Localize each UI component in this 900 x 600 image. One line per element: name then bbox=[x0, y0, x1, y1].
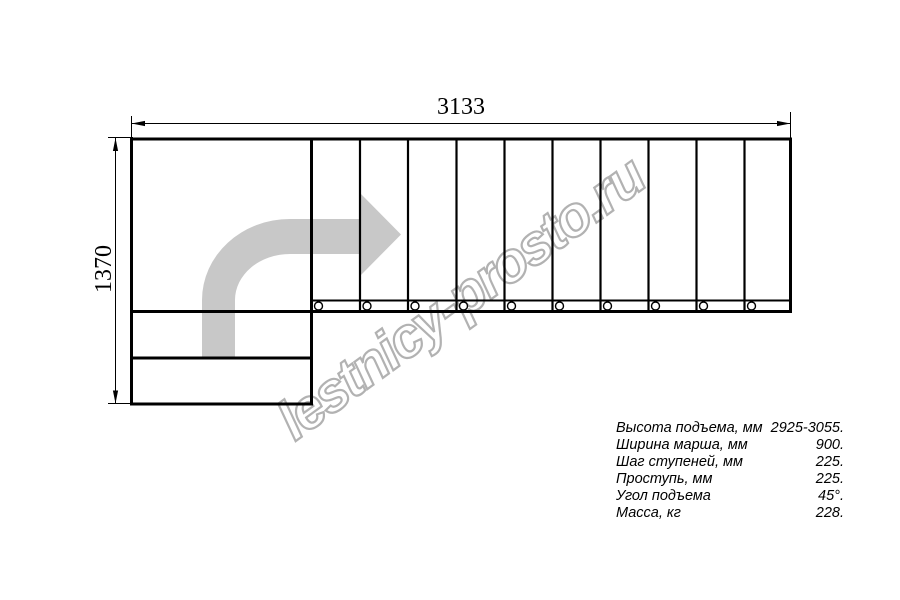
spec-value: 228. bbox=[816, 505, 844, 522]
dimension-width-label: 3133 bbox=[437, 94, 485, 120]
support-circle bbox=[604, 302, 612, 310]
staircase-drawing-page: lestnicy-prosto.ru bbox=[0, 0, 900, 600]
spec-label: Проступь, мм bbox=[616, 471, 712, 488]
support-circles bbox=[315, 302, 756, 310]
tread-dividers bbox=[360, 139, 745, 312]
support-circle bbox=[652, 302, 660, 310]
spec-label: Высота подъема, мм bbox=[616, 420, 763, 437]
support-circle bbox=[508, 302, 516, 310]
spec-row: Шаг ступеней, мм 225. bbox=[616, 454, 844, 471]
spec-table: Высота подъема, мм 2925-3055. Ширина мар… bbox=[616, 420, 844, 522]
dimension-height-label: 1370 bbox=[91, 245, 117, 293]
spec-label: Угол подъема bbox=[616, 488, 711, 505]
spec-value: 2925-3055. bbox=[771, 420, 844, 437]
spec-label: Масса, кг bbox=[616, 505, 681, 522]
spec-row: Проступь, мм 225. bbox=[616, 471, 844, 488]
support-circle bbox=[460, 302, 468, 310]
support-circle bbox=[315, 302, 323, 310]
spec-value: 225. bbox=[816, 454, 844, 471]
support-circle bbox=[700, 302, 708, 310]
spec-row: Высота подъема, мм 2925-3055. bbox=[616, 420, 844, 437]
direction-arrow-icon bbox=[202, 193, 401, 358]
spec-row: Масса, кг 228. bbox=[616, 505, 844, 522]
spec-value: 900. bbox=[816, 437, 844, 454]
support-circle bbox=[411, 302, 419, 310]
spec-label: Ширина марша, мм bbox=[616, 437, 748, 454]
spec-row: Угол подъема 45°. bbox=[616, 488, 844, 505]
support-circle bbox=[363, 302, 371, 310]
spec-value: 225. bbox=[816, 471, 844, 488]
spec-value: 45°. bbox=[818, 488, 844, 505]
spec-row: Ширина марша, мм 900. bbox=[616, 437, 844, 454]
support-circle bbox=[748, 302, 756, 310]
support-circle bbox=[556, 302, 564, 310]
spec-label: Шаг ступеней, мм bbox=[616, 454, 743, 471]
